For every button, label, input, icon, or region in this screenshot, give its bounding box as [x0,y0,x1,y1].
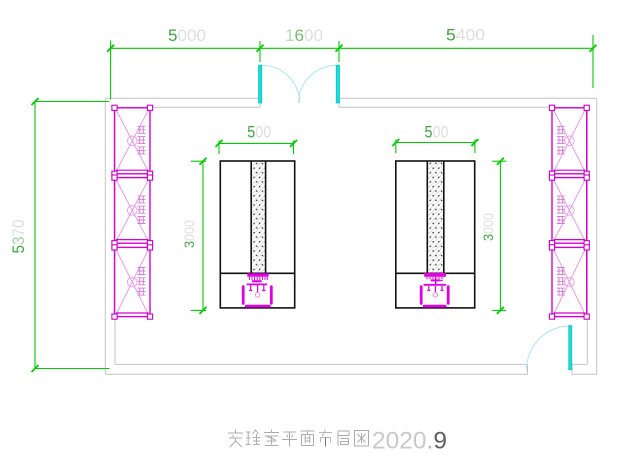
svg-text:5400: 5400 [446,26,485,45]
svg-text:500: 500 [247,123,271,142]
svg-text:2020.9: 2020.9 [372,428,447,455]
svg-text:3000: 3000 [481,213,496,241]
svg-text:5370: 5370 [10,220,28,254]
svg-text:3000: 3000 [182,220,197,248]
svg-text:1600: 1600 [285,26,323,45]
svg-text:5000: 5000 [168,26,206,45]
svg-text:500: 500 [425,123,449,142]
